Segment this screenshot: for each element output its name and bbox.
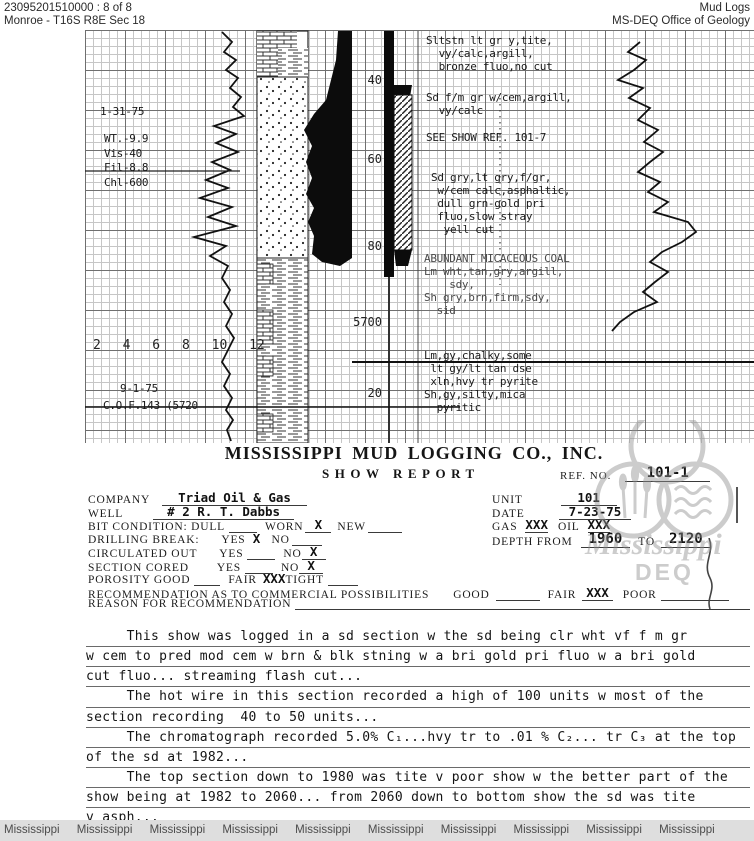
left-log-curve xyxy=(194,32,244,441)
depth-label: 40 xyxy=(352,73,382,87)
watermark-dept-name: DEQ xyxy=(635,559,694,585)
scanned-mud-log-page: 23095201510000 : 8 of 8 Monroe - T16S R8… xyxy=(0,0,754,841)
document-number: 23095201510000 : 8 of 8 xyxy=(4,2,132,15)
form-row-depth: DEPTH FROM 1960 TO 2120 xyxy=(492,531,711,548)
limestone-patch xyxy=(257,264,273,284)
report-body-line: of the sd at 1982... xyxy=(86,748,750,768)
report-body-line: w cem to pred mod cem w brn & blk stning… xyxy=(86,647,750,667)
depth-label: 60 xyxy=(352,152,382,166)
depth-from-label: DEPTH FROM xyxy=(492,536,573,548)
new-label: NEW xyxy=(337,521,366,533)
footer-watermark-text: Mississippi Mississippi Mississippi Miss… xyxy=(0,820,754,836)
depth-track-bar xyxy=(384,31,394,277)
report-body-line: The chromatograph recorded 5.0% C₁...hvy… xyxy=(86,728,750,748)
document-location: Monroe - T16S R8E Sec 18 xyxy=(4,15,145,28)
limestone-patch xyxy=(257,356,273,376)
shale-sliver xyxy=(278,48,308,77)
show-bar-hatched xyxy=(394,95,412,250)
pen-squiggle xyxy=(698,538,720,610)
depth-label: 20 xyxy=(352,386,382,400)
reason-blank xyxy=(295,598,750,610)
show-ref-note: SEE SHOW REF. 101-7 xyxy=(426,131,546,144)
lithology-note: Lm,gy,chalky,some lt gy/lt tan dse xln,h… xyxy=(424,349,538,414)
show-stain-blob xyxy=(304,31,352,266)
circulation-note: C.O.F.143 (5720 xyxy=(103,399,198,412)
to-label: TO xyxy=(638,536,655,548)
report-body-line: section recording 40 to 50 units... xyxy=(86,708,750,728)
company-title: MISSISSIPPI MUD LOGGING CO., INC. xyxy=(134,443,694,464)
show-bar-cap-bottom xyxy=(394,250,412,266)
footer-strip: Mississippi Mississippi Mississippi Miss… xyxy=(0,820,754,841)
sandstone-band xyxy=(257,77,308,258)
agency-label: MS-DEQ Office of Geology xyxy=(612,15,750,28)
collection-label: Mud Logs xyxy=(699,2,750,15)
pen-mark xyxy=(736,487,738,523)
depth-label: 80 xyxy=(352,239,382,253)
depth-from-value: 1960 xyxy=(581,531,631,548)
lithology-note: Sltstn lt gr y,tite, vy/calc,argill, bro… xyxy=(426,34,552,73)
lithology-column xyxy=(257,31,308,443)
mud-log-chart xyxy=(85,30,754,443)
bottom-check-date: 9-1-75 xyxy=(120,382,158,395)
mud-properties: WT.-9.9 Vis-40 Fil-8.8 Chl-600 xyxy=(104,132,148,190)
ref-no-label: REF. NO. xyxy=(560,470,611,482)
lithology-note: Sd f/m gr w/cem,argill, vy/calc xyxy=(426,91,571,117)
lithology-note: Sd gry,lt gry,f/gr, w/cem calc,asphaltic… xyxy=(431,171,570,236)
mud-check-date: 1-31-75 xyxy=(100,105,144,118)
form-row-reason: REASON FOR RECOMMENDATION xyxy=(88,598,750,610)
depth-label: 5700 xyxy=(352,315,382,329)
report-body-line: The top section down to 1980 was tite v … xyxy=(86,768,750,788)
report-body-line: This show was logged in a sd section w t… xyxy=(86,627,750,647)
report-body: This show was logged in a sd section w t… xyxy=(86,627,750,828)
report-body-line: The hot wire in this section recorded a … xyxy=(86,687,750,707)
watermark-waves-glyph xyxy=(675,487,711,518)
new-blank xyxy=(368,521,402,533)
report-body-line: show being at 1982 to 2060... from 2060 … xyxy=(86,788,750,808)
limestone-patch xyxy=(257,414,273,432)
report-body-line: cut fluo... streaming flash cut... xyxy=(86,667,750,687)
lithology-note: ABUNDANT MICACEOUS COAL Lm wht,tan,gry,a… xyxy=(424,252,569,317)
reason-label: REASON FOR RECOMMENDATION xyxy=(88,598,291,610)
ref-no-value: 101-1 xyxy=(625,465,710,482)
scale-numbers: 2 4 6 8 10 12 xyxy=(93,338,265,353)
report-title: SHOW REPORT xyxy=(322,466,480,482)
right-log-curve xyxy=(612,42,696,331)
